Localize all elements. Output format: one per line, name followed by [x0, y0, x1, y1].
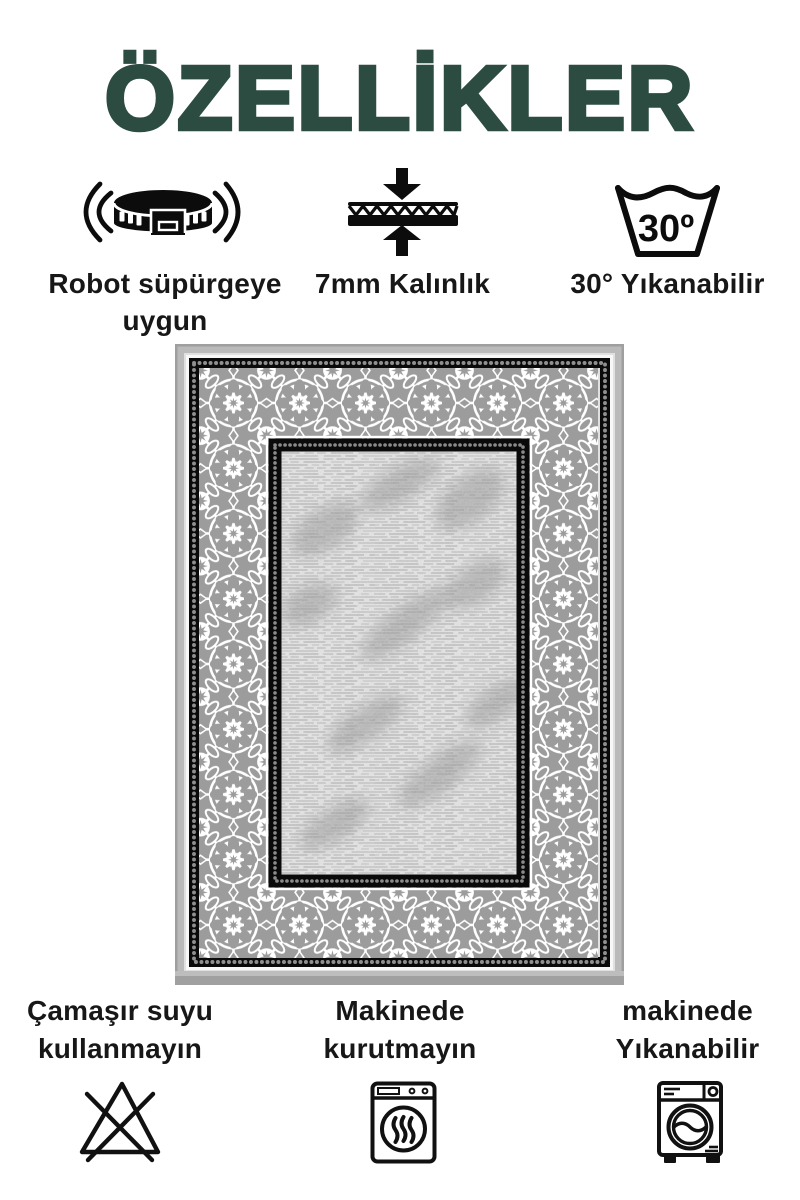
- svg-text:30º: 30º: [638, 208, 694, 250]
